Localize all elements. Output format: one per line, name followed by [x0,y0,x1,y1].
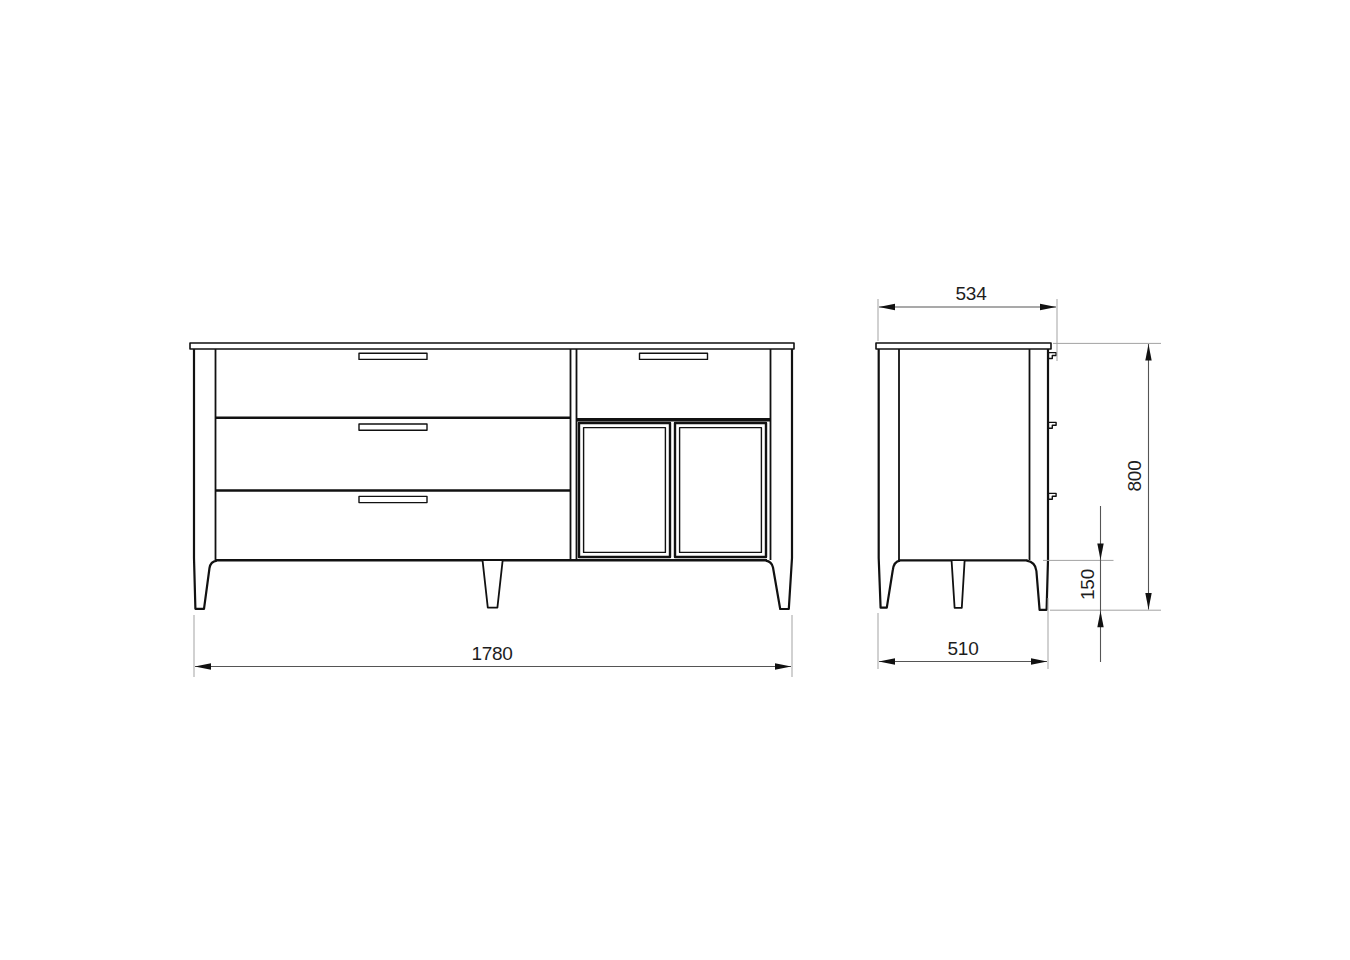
side-handle-nub-2 [1048,422,1056,428]
front-door-left-inner [584,428,666,553]
dim-overall-width-arrow-left [195,663,211,669]
dimensions: 1780 534 800 150 [194,283,1161,677]
side-handle-nub-3 [1048,493,1056,499]
front-top-panel [190,343,794,349]
dim-depth534-label: 534 [956,283,988,304]
side-leg-middle [952,561,965,608]
dim-height-label: 800 [1124,461,1145,492]
dim-overall-width-arrow-right [775,663,791,669]
dim-base-depth: 510 [878,598,1048,669]
dim-leg-arrow-top [1097,544,1103,560]
side-handle-nub-1 [1048,353,1056,359]
dim-height-arrow-top [1145,344,1151,360]
dim-leg-height: 150 [1043,506,1114,662]
front-drawer-1-handle [359,353,427,359]
front-door-right-outer [675,423,766,557]
front-leg-left [194,349,217,609]
dim-leg-arrow-bottom [1097,611,1103,627]
dim-overall-height: 800 [1050,343,1161,610]
dim-depth534-arrow-left [879,304,895,310]
front-door-right-inner [680,428,762,553]
front-leg-middle [483,561,503,608]
dim-depth510-arrow-left [879,658,895,664]
side-view [876,343,1056,610]
dim-height-arrow-bottom [1145,593,1151,609]
dim-depth510-arrow-right [1031,658,1047,664]
dim-leg-label: 150 [1077,569,1098,600]
front-door-left-outer [579,423,670,557]
dim-depth510-label: 510 [948,638,979,659]
front-right-drawer-handle [640,353,708,359]
front-view [190,343,794,609]
side-top-panel [876,343,1051,349]
dim-depth534-arrow-right [1040,304,1056,310]
front-drawer-3-handle [359,496,427,502]
side-leg-left [879,349,900,608]
front-drawer-2-handle [359,424,427,430]
dim-overall-width-label: 1780 [471,643,512,664]
dim-overall-width: 1780 [194,615,792,677]
technical-drawing-sideboard: 1780 534 800 150 [0,0,1350,960]
